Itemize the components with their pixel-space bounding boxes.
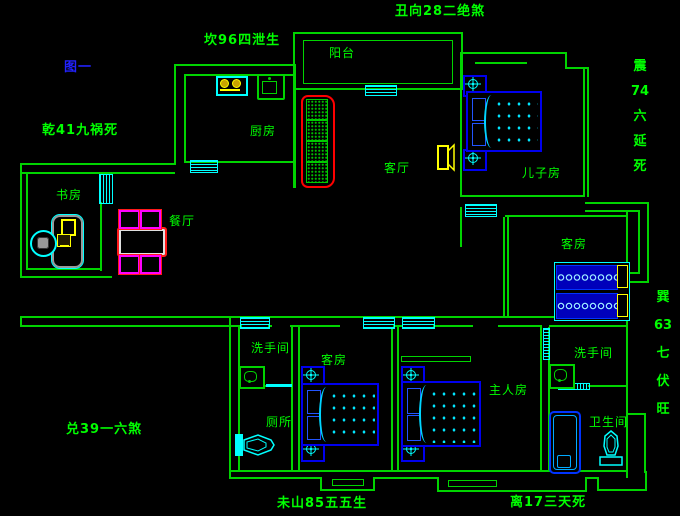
wall-segment bbox=[20, 172, 175, 174]
bed-master bbox=[401, 381, 481, 447]
wall-segment bbox=[397, 327, 399, 470]
annotation-east-lower: 巽 63 七 伏 旺 bbox=[653, 284, 673, 424]
window-symbol bbox=[365, 85, 397, 96]
wall-segment bbox=[647, 202, 649, 283]
wall-segment bbox=[174, 64, 295, 66]
dining-chair bbox=[119, 210, 140, 229]
wall-segment bbox=[644, 413, 646, 473]
toilet bbox=[234, 431, 276, 459]
balcony-railing bbox=[452, 40, 453, 84]
wall-segment bbox=[373, 477, 439, 479]
annotation-northwest: 坎96四泄生 bbox=[204, 34, 280, 48]
wall-segment bbox=[460, 52, 567, 54]
room-label-master: 主人房 bbox=[489, 384, 528, 397]
room-label-balcony: 阳台 bbox=[329, 47, 355, 60]
wall-segment bbox=[638, 210, 640, 274]
wall-segment bbox=[20, 163, 22, 278]
room-label-living: 客厅 bbox=[384, 162, 410, 175]
room-label-toilet: 厕所 bbox=[266, 416, 292, 429]
wall-segment bbox=[628, 281, 649, 283]
window-symbol bbox=[465, 204, 497, 217]
wall-segment bbox=[100, 202, 102, 271]
wall-segment bbox=[320, 489, 375, 491]
floor-plan: 丑向28二绝煞 坎96四泄生 图一 乾41九祸死 震 74 六 延 死 巽 63… bbox=[0, 0, 680, 516]
wall-segment bbox=[20, 316, 629, 318]
ledge bbox=[448, 480, 497, 487]
bathroom-sink bbox=[239, 366, 265, 389]
room-label-bath-left: 洗手间 bbox=[251, 342, 290, 355]
wall-segment bbox=[437, 490, 587, 492]
wall-segment bbox=[597, 489, 647, 491]
room-label-kitchen: 厨房 bbox=[250, 125, 276, 138]
window-symbol bbox=[240, 317, 270, 329]
wall-segment bbox=[174, 64, 176, 165]
room-label-bath-right: 洗手间 bbox=[574, 347, 613, 360]
wall-segment bbox=[293, 32, 295, 90]
annotation-north: 丑向28二绝煞 bbox=[395, 5, 485, 19]
desk-chair bbox=[30, 230, 57, 257]
window-symbol bbox=[402, 317, 435, 329]
balcony-railing bbox=[303, 40, 304, 84]
sofa bbox=[301, 95, 335, 188]
room-label-dining: 餐厅 bbox=[169, 215, 195, 228]
wall-segment bbox=[293, 32, 463, 34]
speaker-icon bbox=[437, 142, 456, 173]
dining-chair bbox=[140, 255, 161, 274]
window-symbol bbox=[190, 160, 218, 173]
dining-table bbox=[117, 227, 167, 257]
wall-segment bbox=[462, 195, 583, 197]
toilet bbox=[597, 428, 625, 470]
figure-title: 图一 bbox=[64, 56, 92, 75]
wall-segment bbox=[291, 327, 293, 470]
wall-segment bbox=[290, 325, 340, 327]
annotation-south: 未山85五五生 bbox=[277, 497, 367, 511]
wall-segment bbox=[433, 325, 473, 327]
wall-segment bbox=[20, 325, 232, 327]
wall-segment bbox=[498, 325, 542, 327]
wardrobe bbox=[401, 356, 471, 362]
annotation-southwest: 兑39一六煞 bbox=[66, 423, 142, 437]
balcony-railing bbox=[303, 83, 453, 84]
bed-guest-mid bbox=[301, 383, 379, 446]
ceiling-fixture-icon bbox=[463, 149, 487, 171]
wall-segment bbox=[583, 67, 585, 197]
room-label-guest-right: 客房 bbox=[561, 238, 587, 251]
wall-segment bbox=[229, 477, 322, 479]
annotation-west: 乾41九祸死 bbox=[42, 124, 118, 138]
annotation-southeast: 离17三天死 bbox=[510, 496, 586, 510]
bathroom-sink bbox=[549, 364, 575, 389]
wall-segment bbox=[373, 477, 375, 491]
wall-segment bbox=[20, 276, 112, 278]
door-panel bbox=[266, 384, 292, 387]
window-symbol bbox=[99, 174, 113, 204]
desk-device bbox=[60, 245, 69, 247]
door-panel bbox=[543, 328, 550, 360]
wall-segment bbox=[585, 210, 640, 212]
stove bbox=[216, 76, 248, 96]
wall-segment bbox=[229, 316, 231, 478]
wall-segment bbox=[391, 327, 393, 470]
wall-segment bbox=[585, 202, 649, 204]
wall-segment bbox=[549, 325, 628, 327]
wall-segment bbox=[585, 477, 587, 492]
bathtub bbox=[549, 411, 581, 474]
ledge bbox=[332, 479, 364, 486]
annotation-east-upper: 震 74 六 延 死 bbox=[630, 54, 650, 179]
wall-segment bbox=[588, 385, 628, 387]
room-label-study: 书房 bbox=[56, 189, 82, 202]
wall-segment bbox=[540, 327, 542, 470]
room-label-son-room: 儿子房 bbox=[522, 167, 561, 180]
wall-segment bbox=[184, 74, 186, 163]
wall-segment bbox=[298, 327, 300, 470]
wall-segment bbox=[645, 471, 647, 491]
dining-chair bbox=[119, 255, 140, 274]
kitchen-sink bbox=[257, 74, 285, 100]
wall-segment bbox=[565, 67, 589, 69]
wall-segment bbox=[507, 217, 509, 316]
window-symbol bbox=[363, 317, 395, 329]
wall-segment bbox=[20, 316, 22, 327]
wall-segment bbox=[26, 172, 28, 270]
bed-son-room bbox=[466, 91, 542, 152]
twin-bed-group bbox=[554, 262, 630, 321]
wall-segment bbox=[587, 67, 589, 197]
wall-segment bbox=[503, 217, 505, 316]
dining-chair bbox=[140, 210, 161, 229]
wall-segment bbox=[505, 215, 628, 217]
wall-segment bbox=[475, 62, 527, 64]
balcony-railing bbox=[303, 40, 453, 41]
wall-segment bbox=[626, 216, 628, 478]
wall-segment bbox=[460, 207, 462, 247]
wall-segment bbox=[20, 163, 176, 165]
